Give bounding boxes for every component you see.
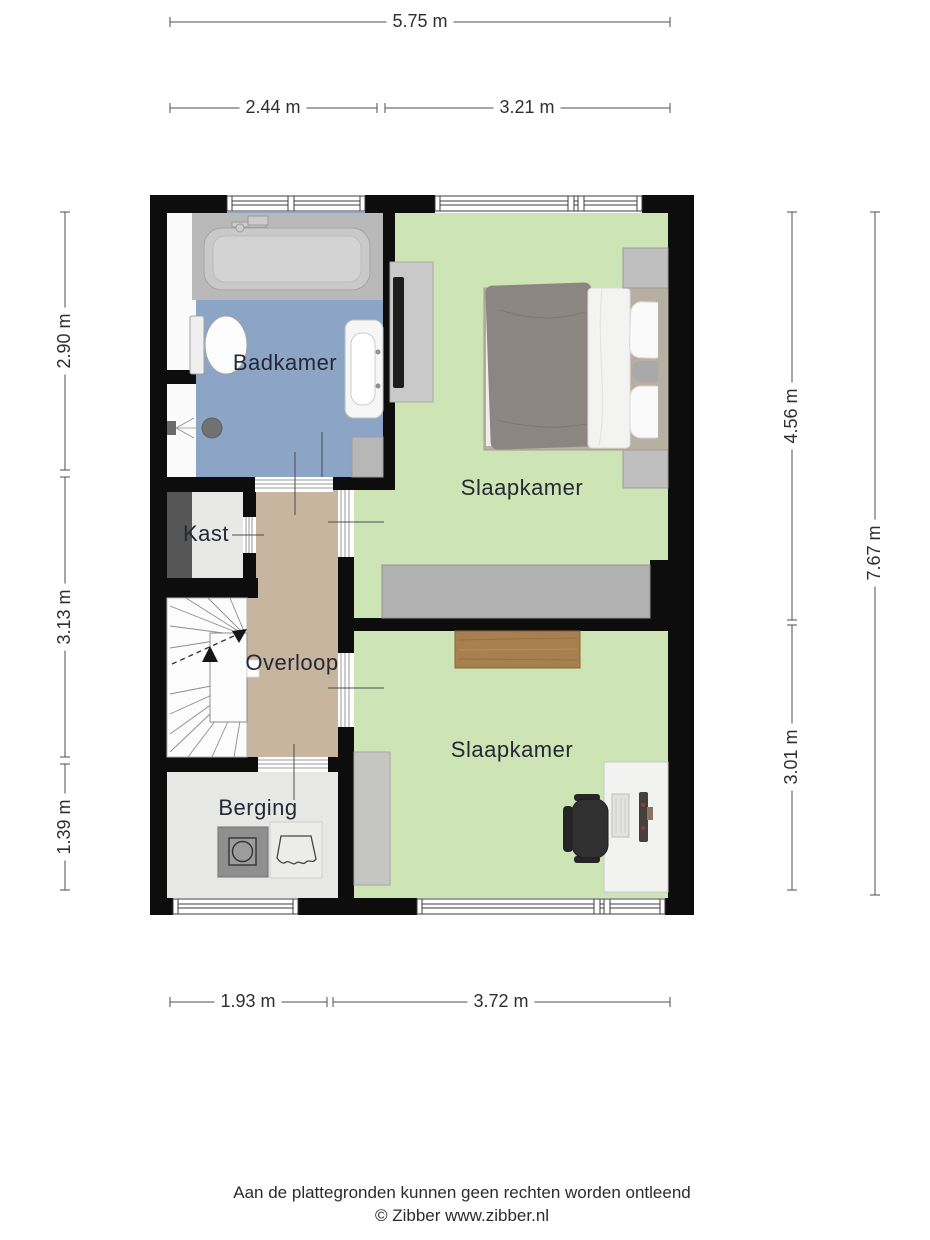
dimension-label-bottom-left: 1.93 m <box>214 992 281 1012</box>
wall-left <box>150 195 167 915</box>
shower-drain-icon <box>202 418 222 438</box>
stairs <box>167 598 259 757</box>
shower-head-icon <box>167 421 176 435</box>
nightstand-bottom <box>623 450 668 488</box>
bed-blanket <box>588 288 630 448</box>
monitor-light-icon <box>641 803 645 807</box>
landing-floor <box>247 490 338 757</box>
wall-bathroom-south-left <box>167 477 255 492</box>
nightstand-top <box>623 248 668 288</box>
washing-machine-icon <box>218 827 268 877</box>
storage-fixtures <box>218 822 322 878</box>
wall-duct-block <box>650 560 668 620</box>
room-label-slaapkamer-bottom: Slaapkamer <box>451 737 573 763</box>
footer-copyright: © Zibber www.zibber.nl <box>375 1206 549 1226</box>
floorplan-page: 5.75 m 2.44 m 3.21 m 2.90 m 3.13 m 1.39 … <box>0 0 930 1240</box>
room-label-overloop: Overloop <box>245 650 338 676</box>
wall-closet-east-upper <box>243 492 256 517</box>
wall-bottom-middle <box>298 898 417 915</box>
door-bedroom-top <box>338 490 354 557</box>
keyboard <box>612 794 629 837</box>
door-bedroom-bottom <box>338 653 354 727</box>
window-bathroom <box>227 196 365 211</box>
wall-closet-east-lower <box>243 553 256 578</box>
door-bathroom <box>255 477 333 492</box>
window-storage <box>173 899 298 914</box>
dimension-label-left-3: 1.39 m <box>55 793 75 860</box>
wall-top-middle <box>365 195 435 213</box>
monitor-stand <box>647 807 653 820</box>
dimension-label-top-right: 3.21 m <box>493 98 560 118</box>
room-label-slaapkamer-top: Slaapkamer <box>461 475 583 501</box>
wall-landing-east-a <box>338 477 354 490</box>
stairs-void <box>210 633 247 722</box>
washbasin-tap-icon <box>376 350 381 355</box>
wall-storage-north-right <box>328 757 354 772</box>
wall-landing-east-b <box>338 557 354 653</box>
footer-disclaimer: Aan de plattegronden kunnen geen rechten… <box>233 1183 690 1203</box>
room-label-badkamer: Badkamer <box>233 350 337 376</box>
dimension-label-right-total: 7.67 m <box>865 519 885 586</box>
wall-bottom-right <box>665 898 694 915</box>
dimension-label-top-total: 5.75 m <box>386 12 453 32</box>
wall-closet-south <box>167 578 258 598</box>
wardrobe <box>354 752 390 885</box>
laundry-basket-icon <box>270 822 322 878</box>
wall-bottom-left <box>150 898 173 915</box>
dimension-label-top-left: 2.44 m <box>239 98 306 118</box>
window-bedroom-top <box>435 196 642 211</box>
wall-right <box>668 195 694 915</box>
floorplan-drawing <box>0 0 930 1240</box>
wall-between-bedrooms <box>354 618 668 631</box>
dimension-label-left-2: 3.13 m <box>55 583 75 650</box>
washbasin-tap-icon <box>376 384 381 389</box>
wood-shelf <box>455 631 580 668</box>
bed-headboard <box>658 292 668 448</box>
wall-storage-north-left <box>167 757 258 772</box>
monitor <box>639 792 648 842</box>
bathtub-basin <box>213 236 361 282</box>
window-bedroom-bottom <box>417 899 665 914</box>
dimension-label-right-1: 4.56 m <box>782 382 802 449</box>
bathroom-cabinet <box>352 437 383 477</box>
tv <box>393 277 404 388</box>
dimension-label-left-1: 2.90 m <box>55 307 75 374</box>
room-label-kast: Kast <box>183 521 229 547</box>
dimension-label-bottom-right: 3.72 m <box>467 992 534 1012</box>
dimension-label-right-2: 3.01 m <box>782 723 802 790</box>
wall-storage-east <box>338 772 354 898</box>
monitor-light-icon <box>641 826 645 830</box>
door-storage <box>258 757 328 772</box>
washbasin-bowl <box>351 333 375 405</box>
dresser <box>382 565 650 618</box>
toilet-tank <box>190 316 204 374</box>
room-label-berging: Berging <box>218 795 297 821</box>
